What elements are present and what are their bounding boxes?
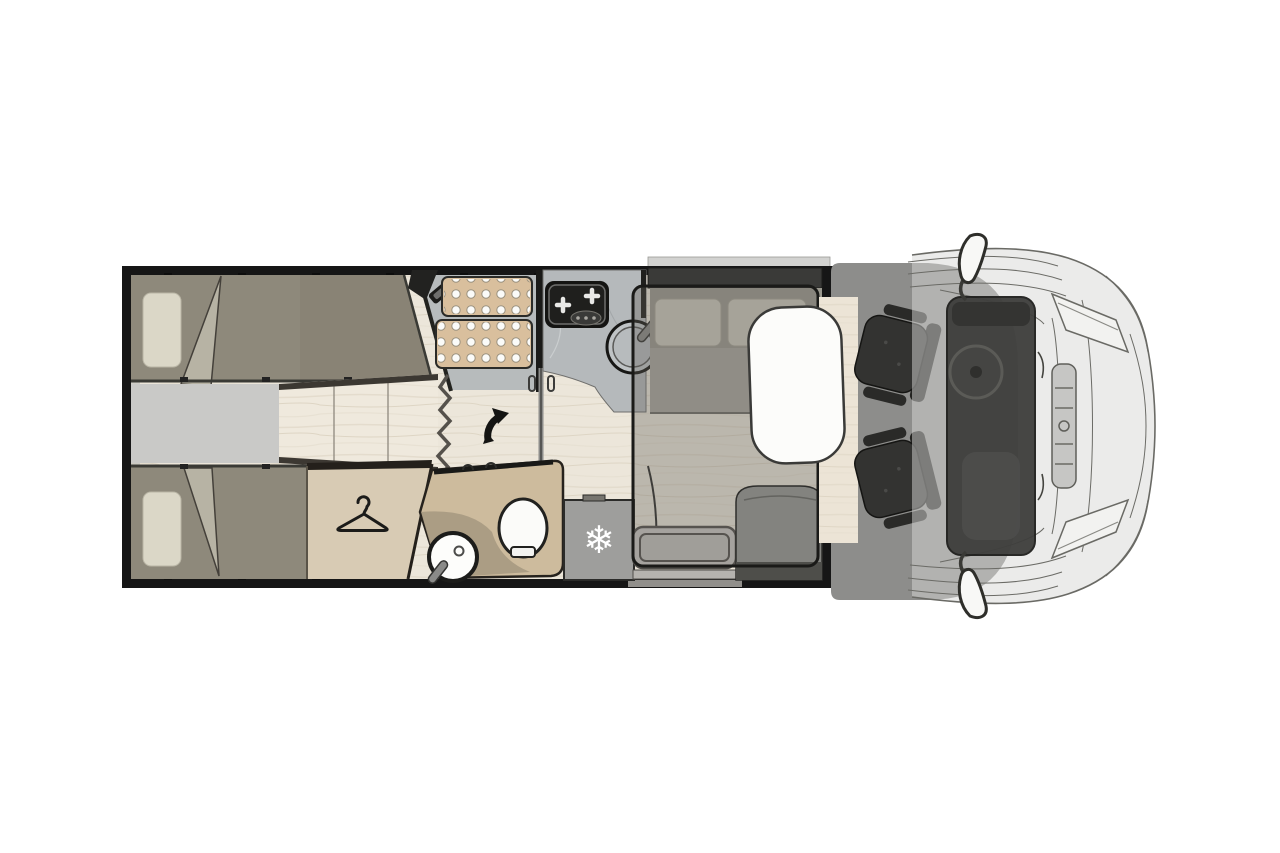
bed-bottom [131,464,307,579]
pillow [143,492,181,566]
awning-rail [648,257,830,267]
bed-top [131,275,432,386]
floorplan-image: ❄ [0,0,1280,853]
fridge-snowflake-icon: ❄ [583,518,615,562]
windshield [947,297,1043,555]
rear-bedroom [131,275,438,579]
bedroom-walkway [131,384,279,463]
washroom-basin [427,533,477,585]
refrigerator: ❄ [564,495,634,580]
hob [545,281,609,328]
dinette-table [747,305,845,464]
pillow [143,293,181,367]
corridor-steps [279,374,438,473]
vehicle-front [908,234,1155,617]
wardrobe [307,460,432,579]
entry-door-gap [628,580,742,587]
cab-bench [962,452,1020,540]
shower-tray [436,277,532,368]
floorplan-svg: ❄ [0,0,1280,853]
grille [1052,364,1076,488]
dashboard [952,302,1030,326]
toilet [499,499,547,557]
